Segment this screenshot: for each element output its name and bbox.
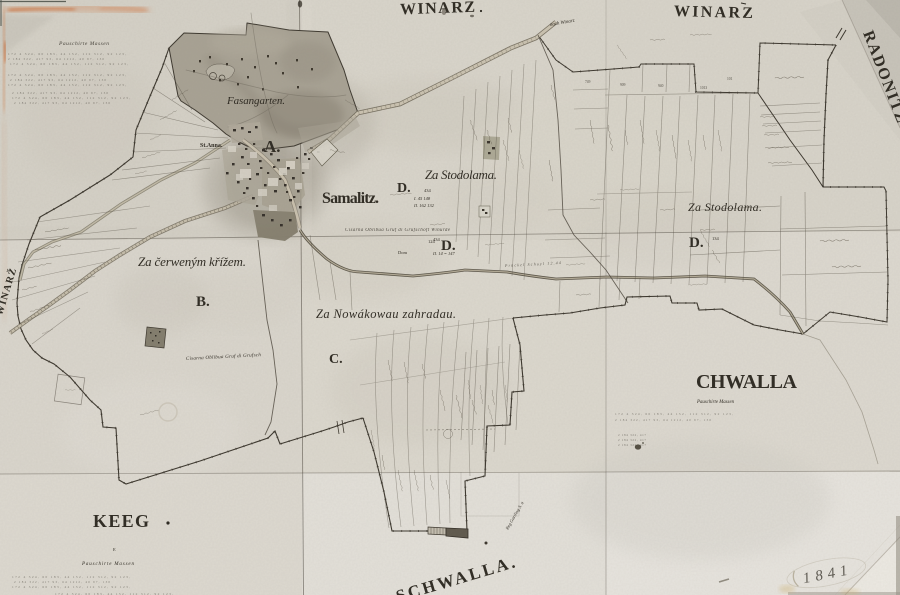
svg-text:C.: C.: [329, 352, 343, 367]
svg-text:St.Anna.: St.Anna.: [200, 143, 223, 149]
svg-text:A.: A.: [264, 137, 281, 156]
svg-text:KEEG: KEEG: [93, 511, 157, 531]
svg-text:749: 749: [585, 80, 591, 84]
svg-text:434: 434: [424, 188, 432, 193]
svg-text:Za čerweným křížem.: Za čerweným křížem.: [138, 254, 246, 269]
svg-text:II. 162 132: II. 162 132: [413, 203, 435, 208]
svg-text:909: 909: [620, 83, 626, 87]
svg-text:D.: D.: [689, 235, 704, 251]
svg-text:B.: B.: [196, 294, 210, 310]
svg-text:Pauschirte Massen: Pauschirte Massen: [58, 41, 109, 47]
svg-text:CHWALLA: CHWALLA: [696, 371, 803, 393]
svg-text:940: 940: [658, 84, 664, 88]
svg-text:Za Nowákowau zahradau.: Za Nowákowau zahradau.: [316, 307, 456, 321]
svg-text:Za Stodolama.: Za Stodolama.: [425, 167, 497, 182]
svg-text:WINARZ: WINARZ: [400, 0, 479, 18]
svg-text:124: 124: [428, 239, 436, 244]
svg-text:Za Stodolama.: Za Stodolama.: [688, 200, 762, 214]
svg-text:Dom: Dom: [398, 250, 407, 255]
svg-text:I. 45 148: I. 45 148: [413, 196, 431, 201]
svg-text:Pauschirte Massen: Pauschirte Massen: [81, 562, 135, 567]
svg-text:WINARZ: WINARZ: [674, 3, 756, 22]
svg-text:D.: D.: [397, 181, 411, 196]
svg-text:101: 101: [727, 77, 733, 81]
svg-text:Pauschirte Massen: Pauschirte Massen: [696, 400, 735, 405]
svg-text:Cisarna Oblibua Gruf di Grufsc: Cisarna Oblibua Gruf di Grufschoft Winur…: [345, 228, 451, 233]
svg-text:Samalitz.: Samalitz.: [322, 190, 379, 207]
svg-text:II. 14 = 147: II. 14 = 147: [432, 251, 456, 256]
svg-text:E: E: [113, 547, 116, 552]
svg-text:134: 134: [712, 236, 720, 241]
svg-text:1013: 1013: [700, 86, 707, 90]
svg-text:Fasangarten.: Fasangarten.: [226, 95, 285, 107]
